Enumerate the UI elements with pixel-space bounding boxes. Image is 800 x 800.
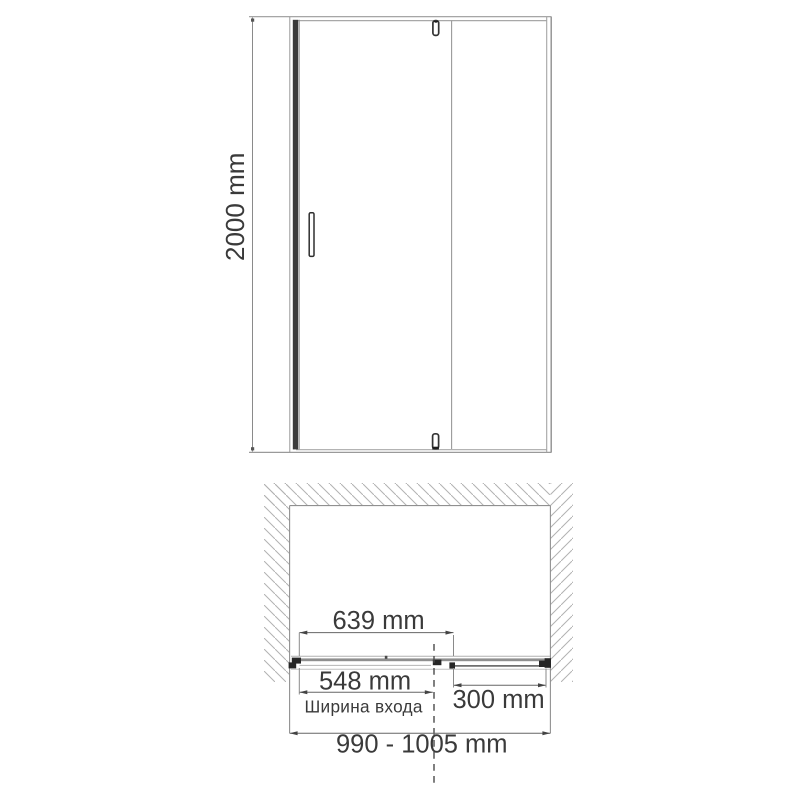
svg-text:990 - 1005 mm: 990 - 1005 mm [336, 731, 508, 759]
svg-text:Ширина входа: Ширина входа [305, 697, 423, 717]
svg-text:2000 mm: 2000 mm [220, 153, 250, 261]
svg-text:639 mm: 639 mm [333, 607, 425, 635]
svg-text:300 mm: 300 mm [453, 686, 545, 714]
svg-text:548 mm: 548 mm [319, 668, 411, 696]
